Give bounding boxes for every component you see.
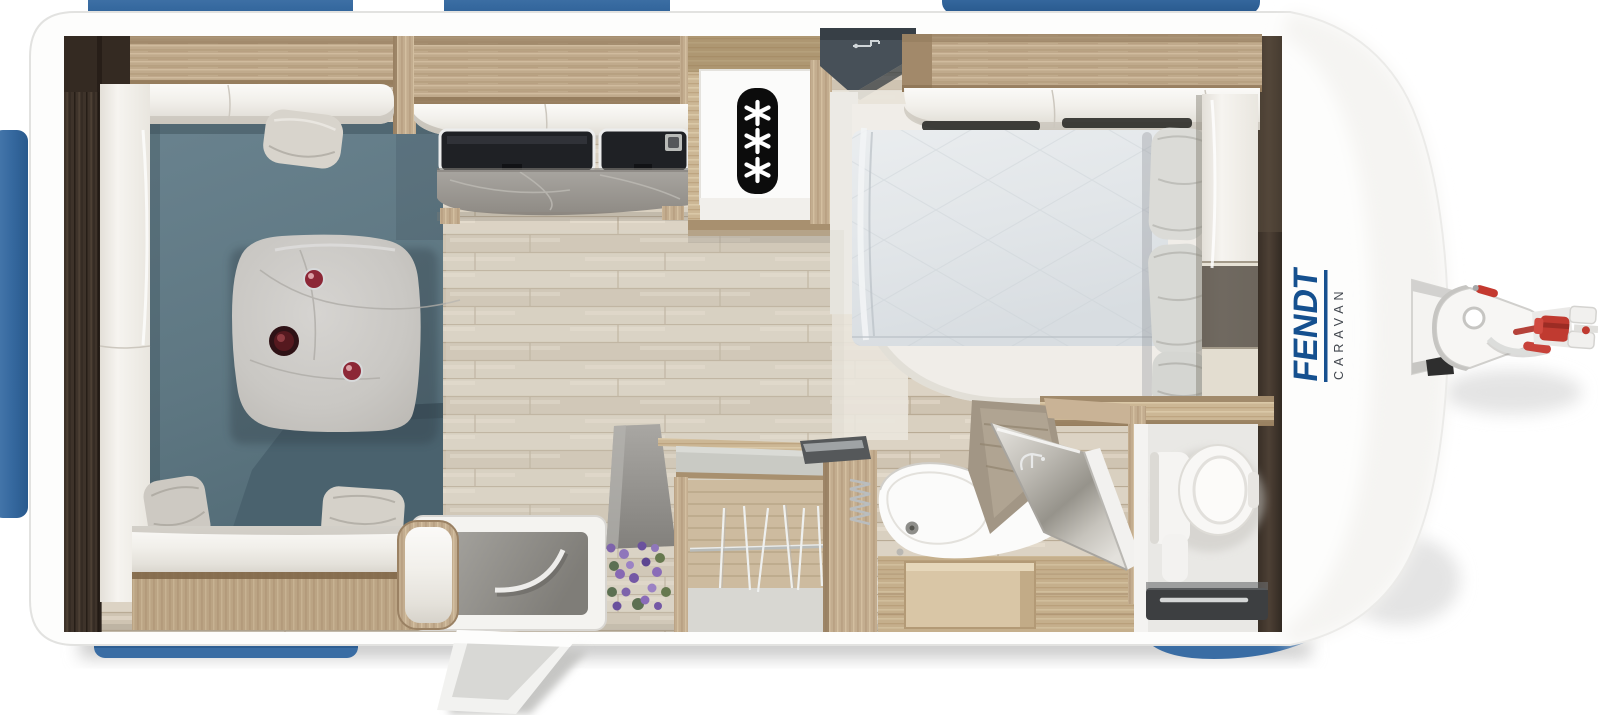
svg-text:CARAVAN: CARAVAN [1332,286,1346,380]
svg-text:FENDT: FENDT [1287,265,1325,384]
